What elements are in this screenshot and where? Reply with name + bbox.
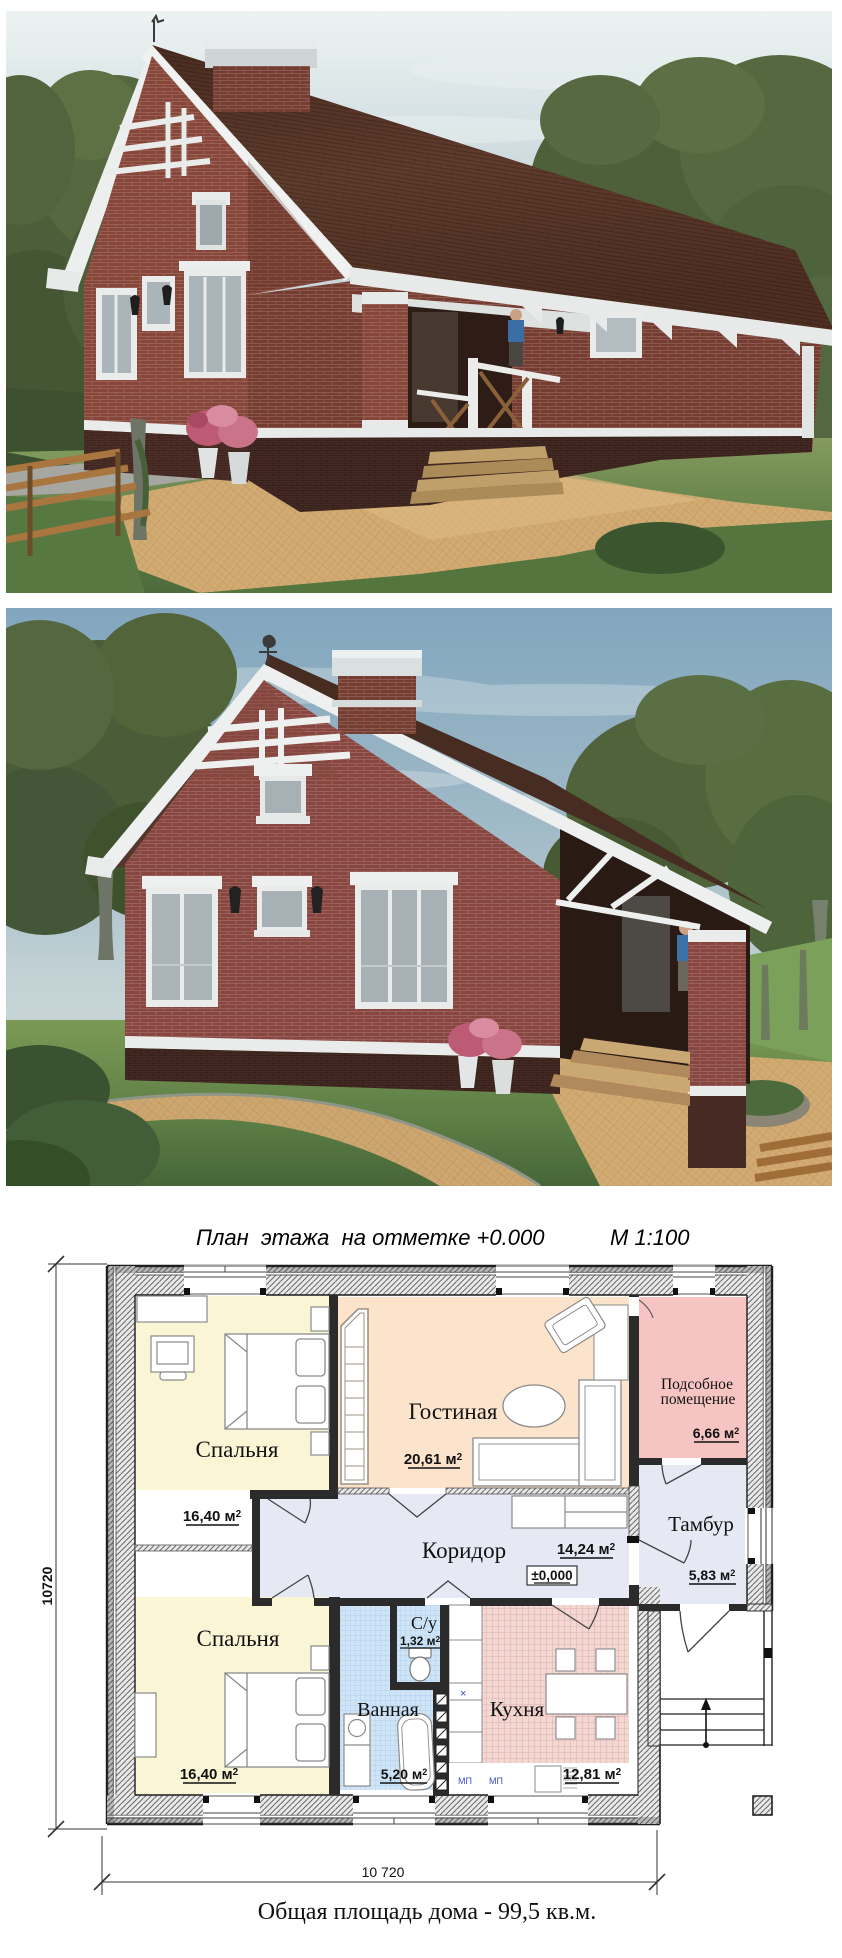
- svg-text:М 1:100: М 1:100: [610, 1225, 690, 1250]
- svg-text:Тамбур: Тамбур: [668, 1512, 734, 1536]
- svg-text:5,20 м2: 5,20 м2: [381, 1766, 428, 1782]
- svg-text:помещение: помещение: [661, 1391, 736, 1408]
- svg-text:5,83 м2: 5,83 м2: [689, 1567, 736, 1583]
- svg-text:План этажа на отметке +0.000: План этажа на отметке +0.000: [196, 1225, 545, 1250]
- svg-text:12,81 м2: 12,81 м2: [563, 1766, 622, 1783]
- svg-text:16,40 м2: 16,40 м2: [180, 1766, 239, 1783]
- svg-text:10 720: 10 720: [362, 1864, 405, 1880]
- svg-text:Коридор: Коридор: [422, 1538, 506, 1563]
- svg-text:10720: 10720: [39, 1566, 55, 1605]
- svg-text:6,66 м2: 6,66 м2: [693, 1425, 740, 1441]
- svg-text:С/у: С/у: [411, 1613, 437, 1633]
- svg-text:±0,000: ±0,000: [531, 1568, 572, 1583]
- svg-text:Спальня: Спальня: [197, 1626, 280, 1651]
- svg-text:Гостиная: Гостиная: [408, 1399, 497, 1424]
- svg-text:МП: МП: [489, 1776, 503, 1786]
- svg-text:14,24 м2: 14,24 м2: [557, 1541, 616, 1558]
- svg-text:16,40 м2: 16,40 м2: [183, 1508, 242, 1525]
- svg-text:Общая площадь дома - 99,5 кв.м: Общая площадь дома - 99,5 кв.м.: [258, 1899, 596, 1925]
- svg-text:20,61 м2: 20,61 м2: [404, 1451, 463, 1468]
- svg-text:МП: МП: [458, 1776, 472, 1786]
- svg-text:Спальня: Спальня: [196, 1437, 279, 1462]
- svg-text:×: ×: [460, 1688, 466, 1700]
- svg-text:1,32 м2: 1,32 м2: [400, 1634, 441, 1648]
- svg-text:Кухня: Кухня: [490, 1697, 545, 1721]
- svg-text:Ванная: Ванная: [357, 1699, 419, 1721]
